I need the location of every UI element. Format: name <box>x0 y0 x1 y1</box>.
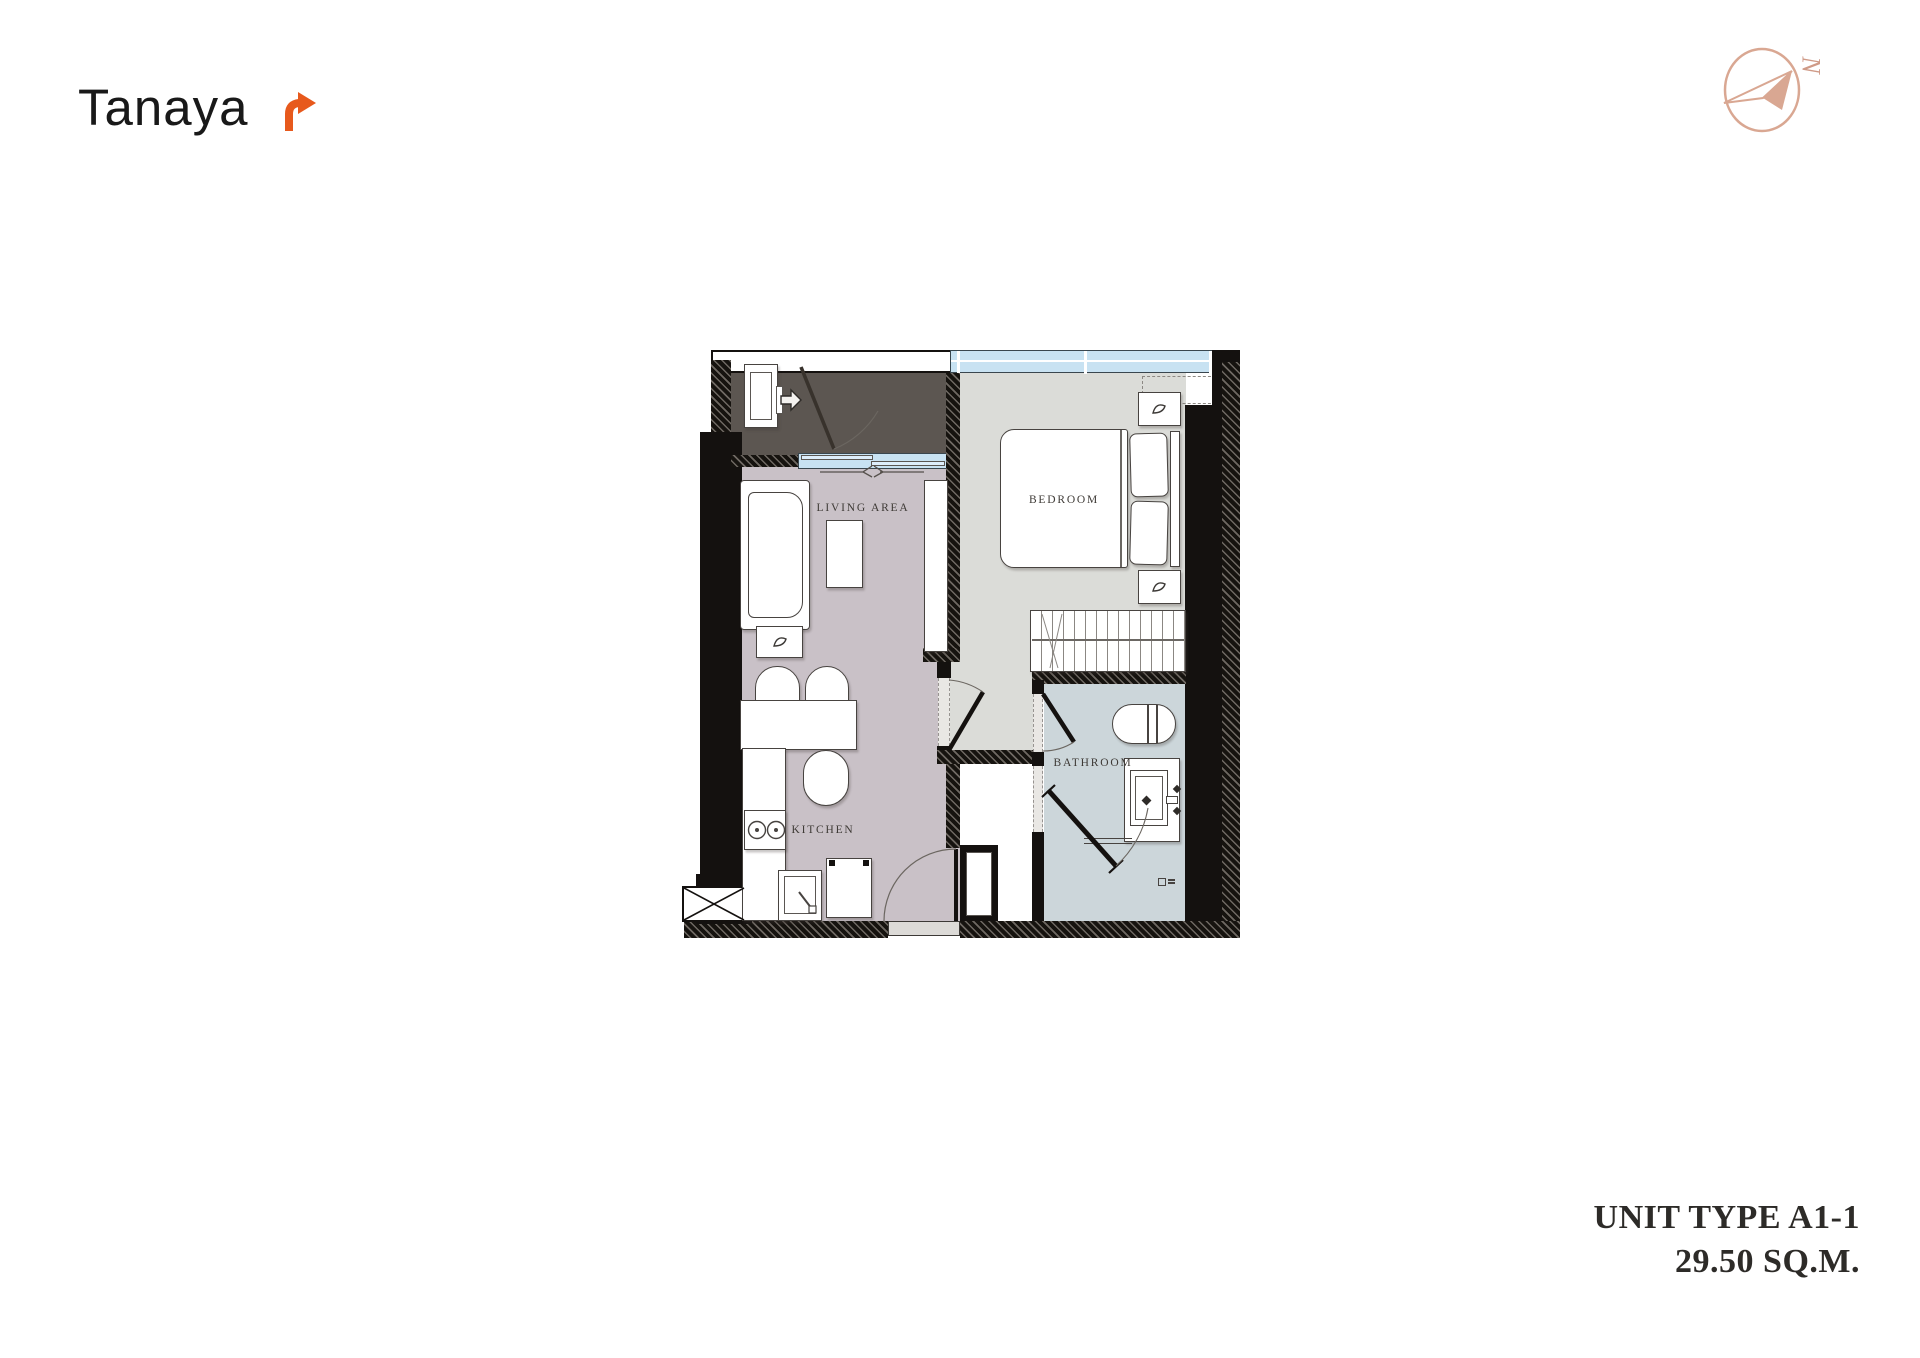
wall-bottom-right <box>960 921 1240 938</box>
floorplan: LIVING AREA BEDROOM KITCHEN BATHROOM <box>0 0 1920 1358</box>
coffee-table <box>826 520 863 588</box>
sliding-panel <box>801 455 873 460</box>
bathroom-door-opening <box>1033 694 1043 752</box>
stove <box>744 810 786 850</box>
pillow <box>1129 501 1169 566</box>
fridge <box>826 858 872 918</box>
tv-console <box>924 480 948 652</box>
bathroom-door-jamb <box>1032 680 1044 694</box>
toilet <box>1112 704 1176 744</box>
nightstand <box>1138 392 1181 426</box>
window-mullion <box>1084 351 1087 374</box>
ac-condenser-inner <box>750 372 772 420</box>
toilet-tank-line <box>1147 705 1149 743</box>
bedroom-window <box>950 350 1218 373</box>
bedroom-door-opening <box>938 678 950 746</box>
dining-table <box>740 700 857 750</box>
wardrobe <box>1030 610 1186 672</box>
wall-right-outer <box>1222 362 1240 938</box>
fridge-handle <box>829 860 835 866</box>
wall-vestibule-bottom <box>937 750 1034 764</box>
headboard <box>1170 431 1180 567</box>
shower-screen <box>1084 838 1132 844</box>
wardrobe-rod <box>1032 639 1184 641</box>
floor-drain <box>1168 879 1175 881</box>
fridge-handle <box>863 860 869 866</box>
entrance-threshold <box>888 921 960 936</box>
room-label-living: LIVING AREA <box>817 502 910 514</box>
entrance-niche-cabinet <box>966 852 992 916</box>
wall-wardrobe-bottom <box>1032 670 1186 684</box>
column-left <box>700 432 742 890</box>
room-label-bathroom: BATHROOM <box>1054 757 1133 769</box>
living-sliding-door <box>798 453 948 469</box>
sofa-cushion <box>748 492 803 618</box>
kitchen-sink-basin <box>784 876 816 914</box>
unit-info: UNIT TYPE A1-1 29.50 SQ.M. <box>1594 1196 1860 1284</box>
wall-below-bedroom-door <box>946 760 960 848</box>
bedroom-door-jamb <box>937 662 951 678</box>
ac-condenser-tab <box>776 386 783 414</box>
service-shaft <box>682 886 746 922</box>
floorplan-sheet: Tanaya N <box>0 0 1920 1358</box>
column-right <box>1185 405 1222 923</box>
wall-living-bedroom <box>946 373 960 662</box>
room-label-bedroom: BEDROOM <box>1029 494 1099 506</box>
bed-duvet-line <box>1120 430 1122 567</box>
nightstand <box>1138 570 1181 604</box>
side-table <box>756 626 803 658</box>
vanity-faucet <box>1166 796 1178 804</box>
unit-area-label: 29.50 SQ.M. <box>1594 1240 1860 1284</box>
window-mullion <box>957 351 960 374</box>
pillow <box>1129 433 1169 498</box>
bathroom-door-jamb <box>1032 752 1044 766</box>
sliding-panel <box>871 461 945 466</box>
wall-entry-divider <box>731 455 801 467</box>
toilet-tank-line <box>1156 705 1158 743</box>
unit-type-label: UNIT TYPE A1-1 <box>1594 1196 1860 1240</box>
room-label-kitchen: KITCHEN <box>791 824 854 836</box>
bathroom-wall-lower <box>1032 832 1044 921</box>
shower-door-opening <box>1033 766 1043 832</box>
floor-drain <box>1158 878 1166 886</box>
dining-chair <box>803 750 849 806</box>
